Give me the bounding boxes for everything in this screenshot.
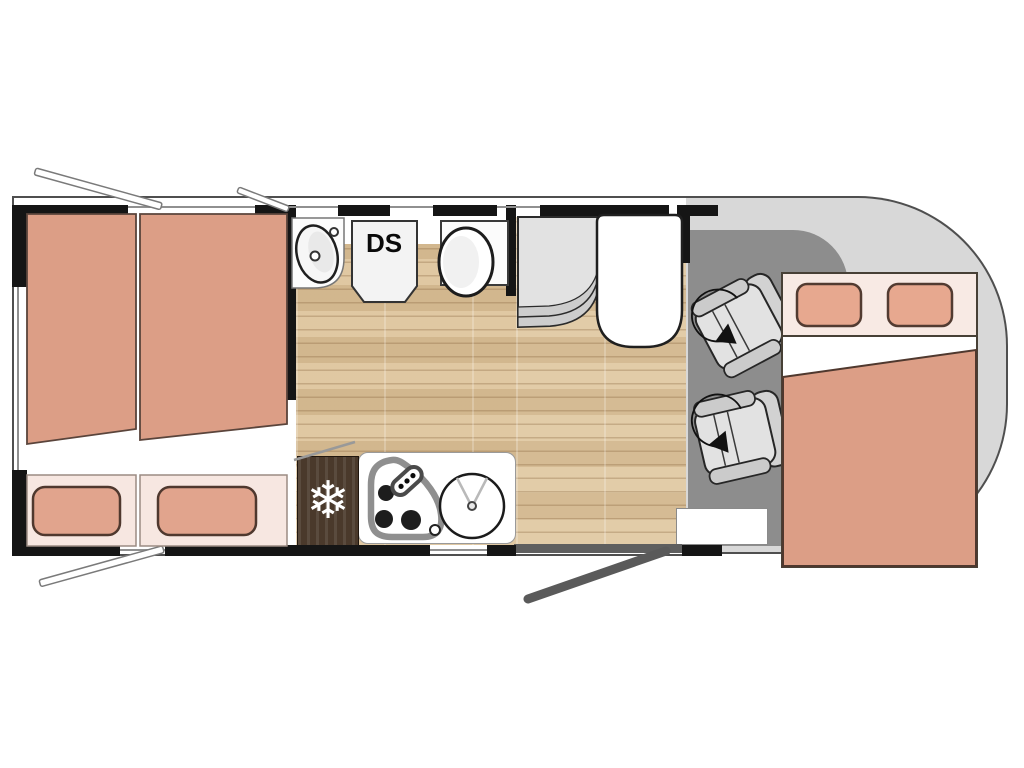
bedroom-door-swing xyxy=(294,442,355,460)
open-window-flap-rear-top xyxy=(34,168,162,210)
pillow-right xyxy=(158,487,256,535)
twin-bed-left-blanket xyxy=(27,214,136,444)
entry-door-open xyxy=(528,551,666,599)
dinette-table xyxy=(597,215,682,347)
sink-drain xyxy=(468,502,476,510)
washbasin-faucet xyxy=(330,228,338,236)
pillow-cab-right xyxy=(888,284,952,326)
toilet-bowl-inner xyxy=(443,236,479,288)
burner-2 xyxy=(375,510,393,528)
shower-label: DS xyxy=(366,228,402,258)
washbasin-drain xyxy=(311,252,320,261)
floorplan-canvas: ❄ xyxy=(0,0,1024,768)
burner-3 xyxy=(401,510,421,530)
open-window-flap-bottom xyxy=(39,546,164,587)
pillow-left xyxy=(33,487,120,535)
furniture-layer: DS xyxy=(0,0,1024,768)
sink-tap-base xyxy=(430,525,440,535)
pillow-cab-left xyxy=(797,284,861,326)
open-window-flap-mid-top xyxy=(237,187,290,212)
drop-down-bed-blanket xyxy=(783,350,976,566)
drop-down-bed xyxy=(782,273,977,567)
stove-hob xyxy=(371,460,441,537)
twin-bed-right-blanket xyxy=(140,214,287,440)
swivel-seat-rear xyxy=(687,381,794,487)
